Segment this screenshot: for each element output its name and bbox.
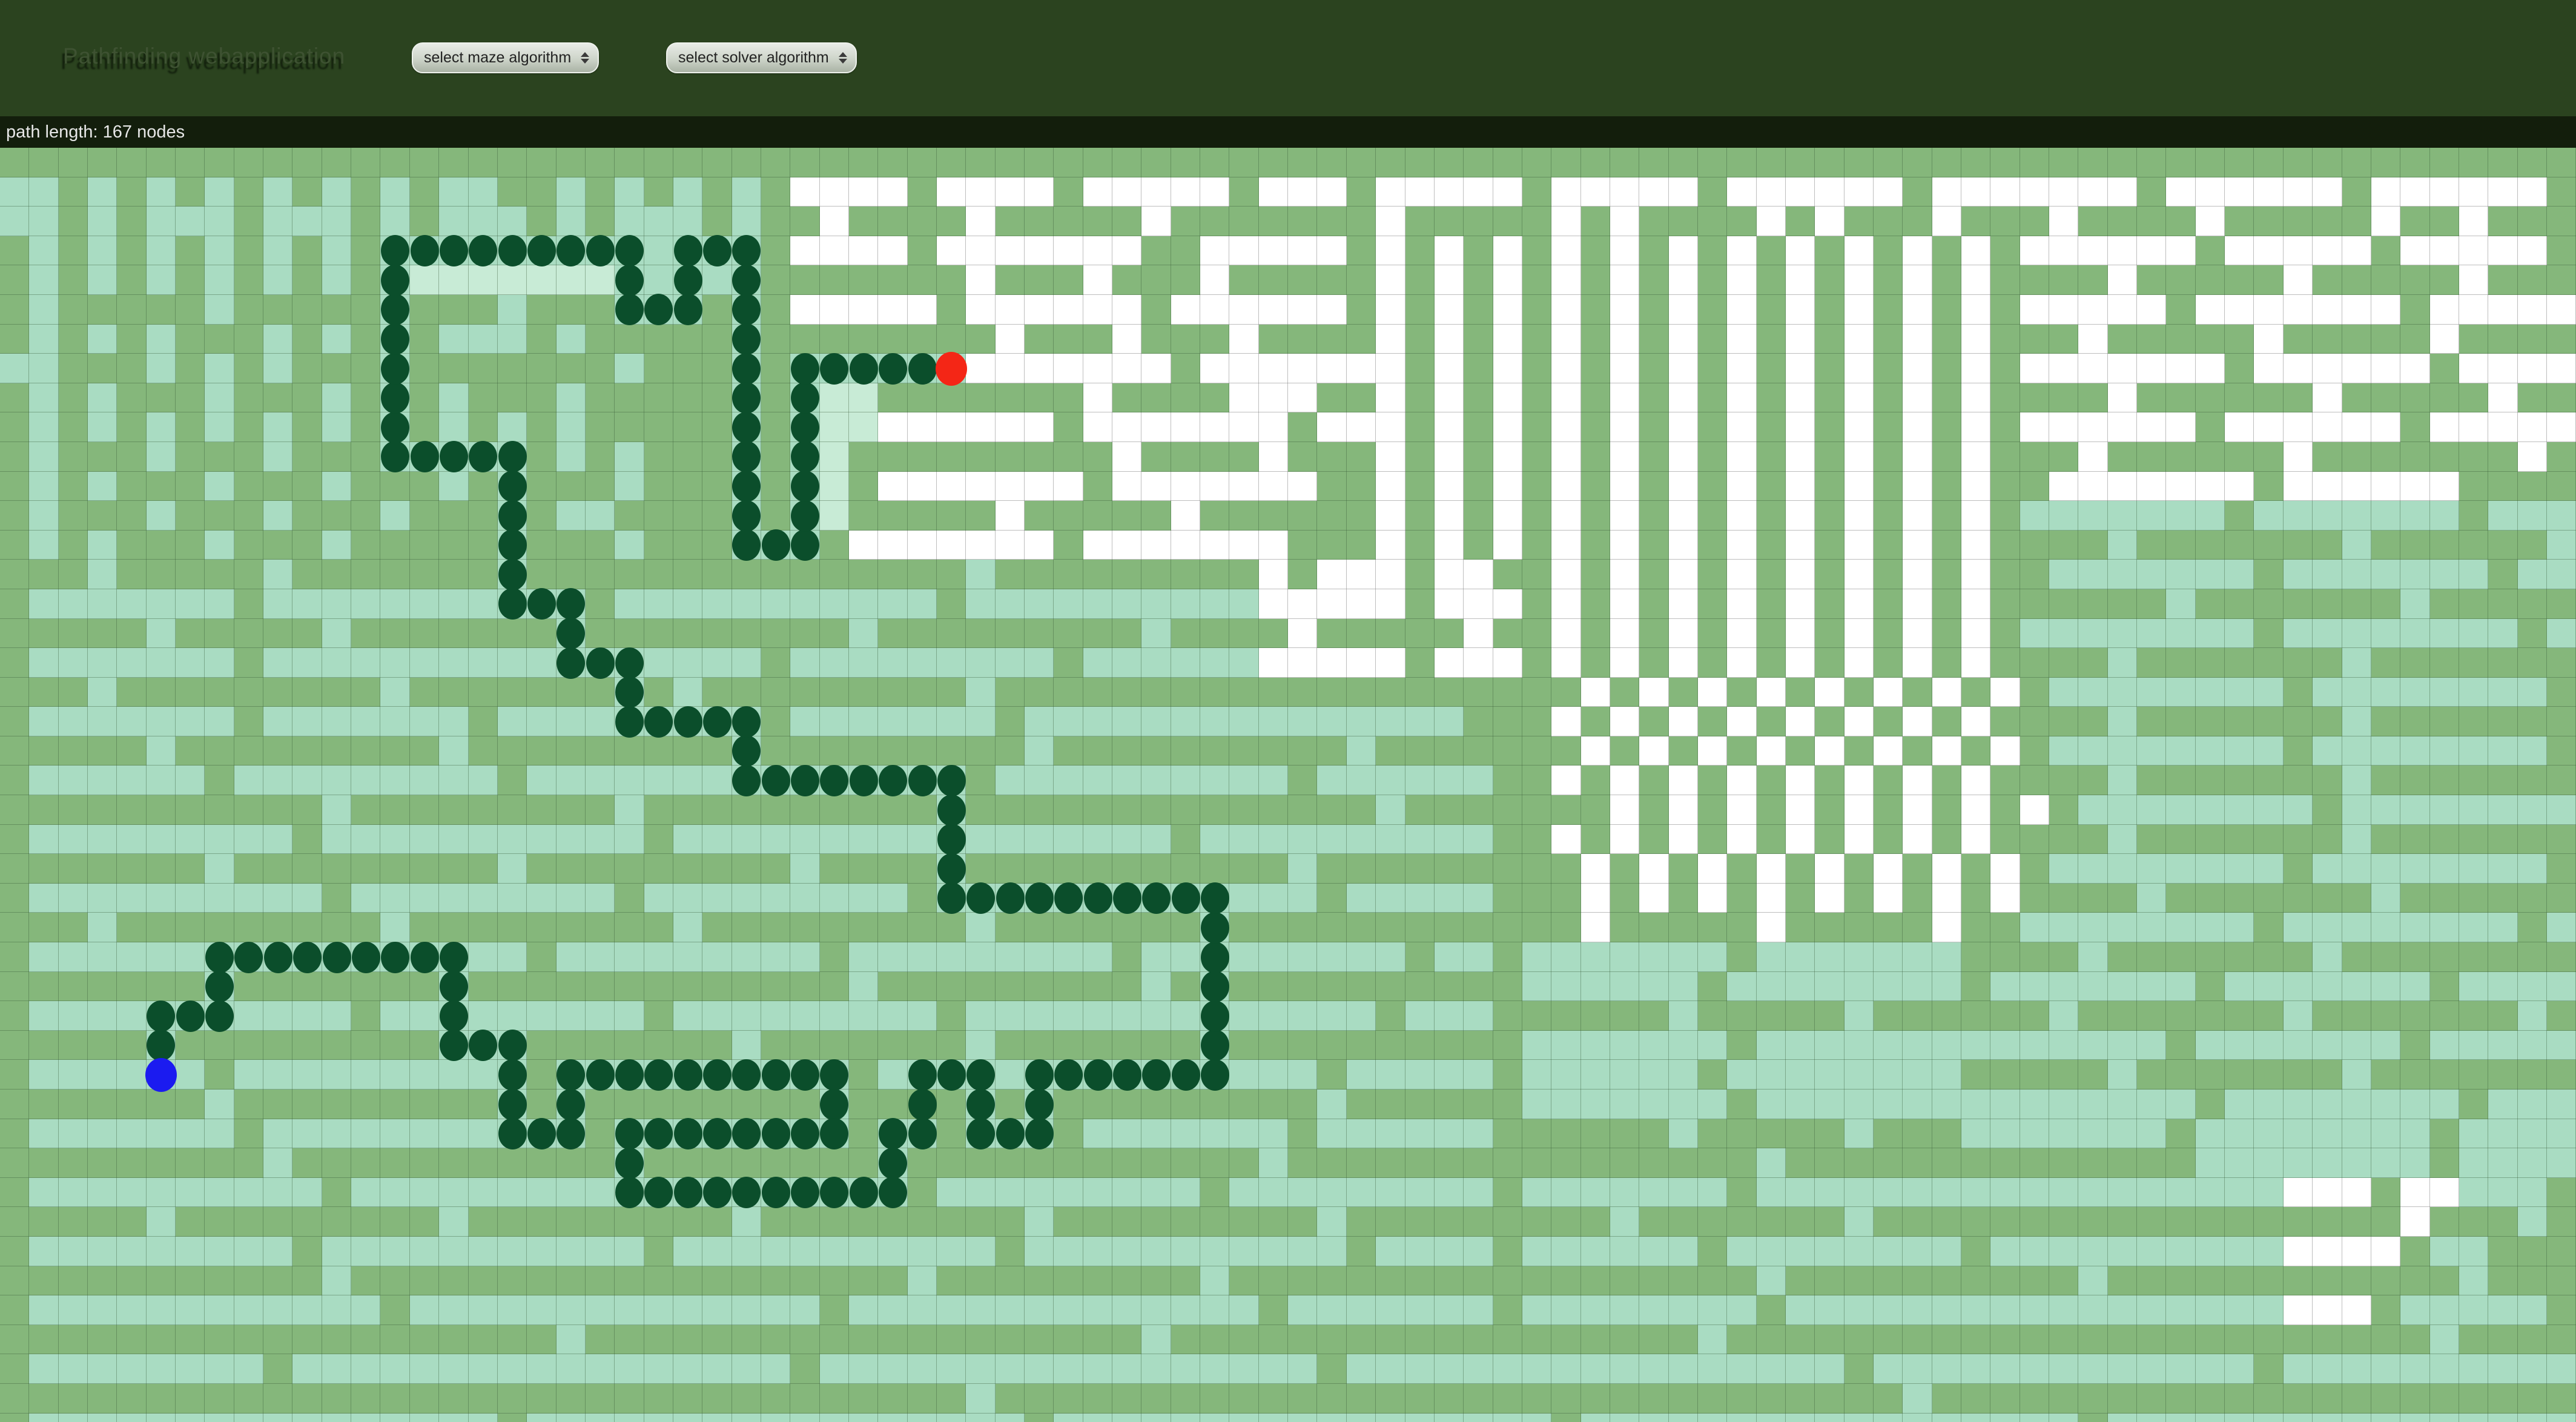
maze-cell[interactable] xyxy=(147,472,176,501)
maze-cell[interactable] xyxy=(1844,1060,1874,1090)
maze-cell[interactable] xyxy=(2020,648,2049,678)
maze-cell[interactable] xyxy=(1200,1325,1229,1355)
maze-cell[interactable] xyxy=(351,678,380,707)
maze-cell[interactable] xyxy=(1259,884,1288,913)
maze-cell[interactable] xyxy=(761,1207,790,1237)
maze-cell[interactable] xyxy=(2400,1001,2429,1031)
maze-cell[interactable] xyxy=(615,619,644,649)
maze-cell[interactable] xyxy=(1815,707,1844,736)
maze-cell[interactable] xyxy=(1259,707,1288,736)
maze-cell[interactable] xyxy=(702,1090,732,1119)
maze-cell[interactable] xyxy=(2020,1119,2049,1149)
maze-cell[interactable] xyxy=(702,354,732,383)
maze-cell[interactable] xyxy=(2020,766,2049,795)
maze-cell[interactable] xyxy=(2049,942,2078,972)
maze-cell[interactable] xyxy=(2518,1325,2547,1355)
maze-cell[interactable] xyxy=(527,207,556,236)
maze-cell[interactable] xyxy=(147,295,176,325)
maze-cell[interactable] xyxy=(205,265,234,295)
maze-cell[interactable] xyxy=(29,589,58,619)
maze-cell[interactable] xyxy=(263,736,292,766)
maze-cell[interactable] xyxy=(2137,766,2166,795)
maze-cell[interactable] xyxy=(673,177,702,207)
maze-cell[interactable] xyxy=(1083,501,1112,531)
maze-cell[interactable] xyxy=(234,354,263,383)
maze-cell[interactable] xyxy=(1698,678,1727,707)
maze-cell[interactable] xyxy=(966,736,995,766)
maze-cell[interactable] xyxy=(586,825,615,855)
maze-cell[interactable] xyxy=(2518,1414,2547,1422)
maze-cell[interactable] xyxy=(2488,1119,2517,1149)
maze-cell[interactable] xyxy=(29,1354,58,1384)
maze-cell[interactable] xyxy=(1025,295,1054,325)
maze-cell[interactable] xyxy=(966,325,995,354)
maze-cell[interactable] xyxy=(2430,383,2459,413)
maze-cell[interactable] xyxy=(849,295,878,325)
maze-cell[interactable] xyxy=(586,1295,615,1325)
maze-cell[interactable] xyxy=(2108,942,2137,972)
maze-cell[interactable] xyxy=(673,589,702,619)
maze-cell[interactable] xyxy=(1054,1384,1083,1414)
maze-cell[interactable] xyxy=(790,295,819,325)
maze-cell[interactable] xyxy=(1961,707,1990,736)
maze-cell[interactable] xyxy=(29,1237,58,1266)
maze-cell[interactable] xyxy=(673,825,702,855)
maze-cell[interactable] xyxy=(1522,1119,1551,1149)
maze-cell[interactable] xyxy=(908,1384,937,1414)
maze-cell[interactable] xyxy=(996,1384,1025,1414)
maze-cell[interactable] xyxy=(263,825,292,855)
maze-cell[interactable] xyxy=(1581,854,1610,884)
maze-cell[interactable] xyxy=(761,736,790,766)
maze-cell[interactable] xyxy=(2371,1148,2400,1178)
maze-cell[interactable] xyxy=(820,1031,849,1060)
maze-cell[interactable] xyxy=(2313,648,2342,678)
maze-cell[interactable] xyxy=(1932,1090,1961,1119)
maze-cell[interactable] xyxy=(2342,972,2371,1002)
maze-cell[interactable] xyxy=(2400,707,2429,736)
maze-cell[interactable] xyxy=(2313,1354,2342,1384)
maze-cell[interactable] xyxy=(351,501,380,531)
maze-cell[interactable] xyxy=(1727,412,1756,442)
maze-cell[interactable] xyxy=(2137,795,2166,825)
maze-cell[interactable] xyxy=(996,1414,1025,1422)
maze-cell[interactable] xyxy=(527,766,556,795)
maze-cell[interactable] xyxy=(322,1384,351,1414)
maze-cell[interactable] xyxy=(1932,501,1961,531)
maze-cell[interactable] xyxy=(702,442,732,472)
maze-cell[interactable] xyxy=(849,795,878,825)
maze-cell[interactable] xyxy=(1961,942,1990,972)
maze-cell[interactable] xyxy=(2137,177,2166,207)
maze-cell[interactable] xyxy=(2137,442,2166,472)
maze-cell[interactable] xyxy=(2049,1237,2078,1266)
maze-cell[interactable] xyxy=(469,412,498,442)
maze-cell[interactable] xyxy=(2284,148,2313,177)
maze-cell[interactable] xyxy=(673,1090,702,1119)
maze-cell[interactable] xyxy=(790,207,819,236)
maze-cell[interactable] xyxy=(439,1384,468,1414)
maze-cell[interactable] xyxy=(556,383,586,413)
maze-cell[interactable] xyxy=(1786,265,1815,295)
maze-cell[interactable] xyxy=(2284,884,2313,913)
maze-cell[interactable] xyxy=(820,148,849,177)
maze-cell[interactable] xyxy=(1025,648,1054,678)
maze-cell[interactable] xyxy=(1025,913,1054,942)
maze-cell[interactable] xyxy=(1903,736,1932,766)
maze-cell[interactable] xyxy=(1317,148,1346,177)
maze-cell[interactable] xyxy=(205,678,234,707)
maze-cell[interactable] xyxy=(1493,148,1522,177)
maze-cell[interactable] xyxy=(878,501,907,531)
maze-cell[interactable] xyxy=(205,1295,234,1325)
maze-cell[interactable] xyxy=(1669,1001,1698,1031)
maze-cell[interactable] xyxy=(2371,1119,2400,1149)
maze-cell[interactable] xyxy=(1551,1237,1580,1266)
maze-cell[interactable] xyxy=(498,354,527,383)
maze-cell[interactable] xyxy=(1874,678,1903,707)
maze-cell[interactable] xyxy=(2078,1090,2107,1119)
maze-cell[interactable] xyxy=(702,472,732,501)
maze-cell[interactable] xyxy=(410,501,439,531)
maze-cell[interactable] xyxy=(1903,619,1932,649)
maze-cell[interactable] xyxy=(1874,648,1903,678)
maze-cell[interactable] xyxy=(2313,795,2342,825)
maze-cell[interactable] xyxy=(996,265,1025,295)
maze-cell[interactable] xyxy=(556,707,586,736)
maze-cell[interactable] xyxy=(2254,325,2283,354)
maze-cell[interactable] xyxy=(1141,1295,1171,1325)
maze-cell[interactable] xyxy=(878,531,907,560)
maze-cell[interactable] xyxy=(1083,1090,1112,1119)
maze-cell[interactable] xyxy=(1493,1001,1522,1031)
maze-cell[interactable] xyxy=(498,1295,527,1325)
maze-cell[interactable] xyxy=(1435,1031,1464,1060)
maze-cell[interactable] xyxy=(0,942,29,972)
maze-cell[interactable] xyxy=(1054,972,1083,1002)
maze-cell[interactable] xyxy=(1932,854,1961,884)
maze-cell[interactable] xyxy=(2400,1384,2429,1414)
maze-cell[interactable] xyxy=(1112,619,1141,649)
maze-cell[interactable] xyxy=(1551,1295,1580,1325)
maze-cell[interactable] xyxy=(469,619,498,649)
maze-cell[interactable] xyxy=(2342,383,2371,413)
maze-cell[interactable] xyxy=(2342,1266,2371,1296)
maze-cell[interactable] xyxy=(2371,531,2400,560)
maze-cell[interactable] xyxy=(322,825,351,855)
maze-cell[interactable] xyxy=(673,148,702,177)
maze-cell[interactable] xyxy=(2400,412,2429,442)
maze-cell[interactable] xyxy=(2020,560,2049,589)
maze-cell[interactable] xyxy=(2313,1207,2342,1237)
maze-cell[interactable] xyxy=(1874,913,1903,942)
maze-cell[interactable] xyxy=(1757,1031,1786,1060)
maze-cell[interactable] xyxy=(615,884,644,913)
maze-cell[interactable] xyxy=(1698,354,1727,383)
maze-cell[interactable] xyxy=(1639,1031,1668,1060)
maze-cell[interactable] xyxy=(1786,295,1815,325)
maze-cell[interactable] xyxy=(117,648,146,678)
maze-cell[interactable] xyxy=(2342,619,2371,649)
maze-cell[interactable] xyxy=(380,1384,409,1414)
maze-cell[interactable] xyxy=(292,354,322,383)
maze-cell[interactable] xyxy=(1493,1178,1522,1208)
maze-cell[interactable] xyxy=(1698,1207,1727,1237)
maze-cell[interactable] xyxy=(2196,295,2225,325)
maze-cell[interactable] xyxy=(2518,1119,2547,1149)
maze-cell[interactable] xyxy=(1903,707,1932,736)
maze-cell[interactable] xyxy=(1786,560,1815,589)
maze-cell[interactable] xyxy=(2166,1325,2195,1355)
maze-cell[interactable] xyxy=(2488,1384,2517,1414)
maze-cell[interactable] xyxy=(1844,1001,1874,1031)
maze-cell[interactable] xyxy=(2108,707,2137,736)
maze-cell[interactable] xyxy=(439,472,468,501)
maze-cell[interactable] xyxy=(1405,531,1435,560)
maze-cell[interactable] xyxy=(2049,236,2078,266)
maze-cell[interactable] xyxy=(1581,1119,1610,1149)
maze-cell[interactable] xyxy=(2225,1060,2254,1090)
maze-cell[interactable] xyxy=(2049,295,2078,325)
maze-cell[interactable] xyxy=(1083,236,1112,266)
maze-cell[interactable] xyxy=(176,325,205,354)
maze-cell[interactable] xyxy=(117,1148,146,1178)
maze-cell[interactable] xyxy=(2254,1354,2283,1384)
maze-cell[interactable] xyxy=(1171,1207,1200,1237)
maze-cell[interactable] xyxy=(1259,1384,1288,1414)
maze-cell[interactable] xyxy=(410,913,439,942)
maze-cell[interactable] xyxy=(351,207,380,236)
maze-cell[interactable] xyxy=(263,1001,292,1031)
maze-cell[interactable] xyxy=(527,354,556,383)
maze-cell[interactable] xyxy=(59,1266,88,1296)
maze-cell[interactable] xyxy=(176,942,205,972)
maze-cell[interactable] xyxy=(1698,972,1727,1002)
maze-cell[interactable] xyxy=(117,913,146,942)
maze-cell[interactable] xyxy=(1112,913,1141,942)
maze-cell[interactable] xyxy=(1376,295,1405,325)
maze-cell[interactable] xyxy=(2108,354,2137,383)
maze-cell[interactable] xyxy=(1815,560,1844,589)
maze-cell[interactable] xyxy=(292,531,322,560)
maze-cell[interactable] xyxy=(1786,1325,1815,1355)
maze-cell[interactable] xyxy=(761,1090,790,1119)
maze-cell[interactable] xyxy=(2166,354,2195,383)
maze-cell[interactable] xyxy=(1522,1148,1551,1178)
maze-cell[interactable] xyxy=(1317,1266,1346,1296)
maze-cell[interactable] xyxy=(2371,1237,2400,1266)
maze-cell[interactable] xyxy=(1698,412,1727,442)
maze-cell[interactable] xyxy=(1405,736,1435,766)
maze-cell[interactable] xyxy=(527,972,556,1002)
maze-cell[interactable] xyxy=(205,1090,234,1119)
maze-cell[interactable] xyxy=(966,354,995,383)
maze-cell[interactable] xyxy=(1669,707,1698,736)
maze-cell[interactable] xyxy=(1229,942,1258,972)
maze-cell[interactable] xyxy=(1932,884,1961,913)
maze-cell[interactable] xyxy=(205,295,234,325)
maze-cell[interactable] xyxy=(1727,1207,1756,1237)
maze-cell[interactable] xyxy=(2225,236,2254,266)
maze-cell[interactable] xyxy=(1435,736,1464,766)
maze-cell[interactable] xyxy=(2459,942,2488,972)
maze-cell[interactable] xyxy=(1171,766,1200,795)
maze-cell[interactable] xyxy=(1083,707,1112,736)
maze-cell[interactable] xyxy=(1669,1295,1698,1325)
maze-cell[interactable] xyxy=(498,766,527,795)
maze-cell[interactable] xyxy=(1141,1119,1171,1149)
maze-cell[interactable] xyxy=(1141,148,1171,177)
maze-cell[interactable] xyxy=(205,1384,234,1414)
maze-cell[interactable] xyxy=(937,1237,966,1266)
maze-cell[interactable] xyxy=(1669,1354,1698,1384)
maze-cell[interactable] xyxy=(0,1414,29,1422)
maze-cell[interactable] xyxy=(878,854,907,884)
maze-cell[interactable] xyxy=(1288,295,1317,325)
maze-cell[interactable] xyxy=(1200,295,1229,325)
maze-cell[interactable] xyxy=(292,1207,322,1237)
maze-cell[interactable] xyxy=(2137,1060,2166,1090)
maze-cell[interactable] xyxy=(849,913,878,942)
maze-cell[interactable] xyxy=(2078,265,2107,295)
maze-cell[interactable] xyxy=(1815,1119,1844,1149)
maze-cell[interactable] xyxy=(2488,383,2517,413)
maze-cell[interactable] xyxy=(1786,148,1815,177)
maze-cell[interactable] xyxy=(1317,1237,1346,1266)
maze-cell[interactable] xyxy=(2284,1414,2313,1422)
maze-cell[interactable] xyxy=(1288,589,1317,619)
maze-cell[interactable] xyxy=(1639,354,1668,383)
maze-cell[interactable] xyxy=(2430,207,2459,236)
maze-cell[interactable] xyxy=(878,942,907,972)
maze-cell[interactable] xyxy=(1054,619,1083,649)
maze-cell[interactable] xyxy=(1990,472,2020,501)
maze-cell[interactable] xyxy=(1757,1384,1786,1414)
maze-cell[interactable] xyxy=(2400,442,2429,472)
maze-cell[interactable] xyxy=(263,472,292,501)
maze-cell[interactable] xyxy=(147,736,176,766)
maze-cell[interactable] xyxy=(2488,265,2517,295)
maze-cell[interactable] xyxy=(1435,354,1464,383)
maze-cell[interactable] xyxy=(1376,1148,1405,1178)
maze-cell[interactable] xyxy=(2400,1266,2429,1296)
maze-cell[interactable] xyxy=(1932,531,1961,560)
maze-cell[interactable] xyxy=(1493,942,1522,972)
maze-cell[interactable] xyxy=(1464,148,1493,177)
maze-cell[interactable] xyxy=(1522,177,1551,207)
maze-cell[interactable] xyxy=(2488,531,2517,560)
maze-cell[interactable] xyxy=(790,884,819,913)
maze-cell[interactable] xyxy=(176,1090,205,1119)
maze-cell[interactable] xyxy=(2284,295,2313,325)
maze-cell[interactable] xyxy=(1229,766,1258,795)
maze-cell[interactable] xyxy=(2166,560,2195,589)
maze-cell[interactable] xyxy=(586,589,615,619)
maze-cell[interactable] xyxy=(2313,354,2342,383)
maze-cell[interactable] xyxy=(439,354,468,383)
maze-cell[interactable] xyxy=(702,972,732,1002)
maze-cell[interactable] xyxy=(2313,177,2342,207)
maze-cell[interactable] xyxy=(1932,1060,1961,1090)
maze-cell[interactable] xyxy=(2518,1090,2547,1119)
maze-cell[interactable] xyxy=(1815,1031,1844,1060)
maze-cell[interactable] xyxy=(2459,1325,2488,1355)
maze-cell[interactable] xyxy=(176,1295,205,1325)
maze-cell[interactable] xyxy=(1815,1384,1844,1414)
maze-cell[interactable] xyxy=(2137,1354,2166,1384)
maze-cell[interactable] xyxy=(2371,412,2400,442)
maze-cell[interactable] xyxy=(469,1207,498,1237)
maze-cell[interactable] xyxy=(937,972,966,1002)
maze-cell[interactable] xyxy=(937,531,966,560)
maze-cell[interactable] xyxy=(1786,1207,1815,1237)
maze-cell[interactable] xyxy=(820,177,849,207)
maze-cell[interactable] xyxy=(556,884,586,913)
maze-cell[interactable] xyxy=(29,560,58,589)
maze-cell[interactable] xyxy=(2137,1384,2166,1414)
maze-cell[interactable] xyxy=(2459,265,2488,295)
maze-cell[interactable] xyxy=(1844,707,1874,736)
maze-cell[interactable] xyxy=(586,1148,615,1178)
maze-cell[interactable] xyxy=(1141,619,1171,649)
maze-cell[interactable] xyxy=(1610,236,1639,266)
maze-cell[interactable] xyxy=(2225,383,2254,413)
maze-cell[interactable] xyxy=(2430,1384,2459,1414)
maze-cell[interactable] xyxy=(1083,1354,1112,1384)
maze-cell[interactable] xyxy=(820,472,849,501)
maze-cell[interactable] xyxy=(2254,265,2283,295)
maze-cell[interactable] xyxy=(263,1148,292,1178)
maze-cell[interactable] xyxy=(1200,265,1229,295)
maze-cell[interactable] xyxy=(586,207,615,236)
maze-cell[interactable] xyxy=(1025,854,1054,884)
maze-cell[interactable] xyxy=(1990,531,2020,560)
maze-cell[interactable] xyxy=(1932,913,1961,942)
maze-cell[interactable] xyxy=(1903,913,1932,942)
maze-cell[interactable] xyxy=(2313,825,2342,855)
maze-cell[interactable] xyxy=(351,648,380,678)
maze-cell[interactable] xyxy=(673,1001,702,1031)
maze-cell[interactable] xyxy=(702,648,732,678)
maze-cell[interactable] xyxy=(2108,442,2137,472)
maze-cell[interactable] xyxy=(0,325,29,354)
maze-cell[interactable] xyxy=(1493,207,1522,236)
maze-cell[interactable] xyxy=(1083,207,1112,236)
maze-cell[interactable] xyxy=(1141,1207,1171,1237)
maze-cell[interactable] xyxy=(147,442,176,472)
maze-cell[interactable] xyxy=(1493,678,1522,707)
maze-cell[interactable] xyxy=(351,589,380,619)
maze-cell[interactable] xyxy=(439,1237,468,1266)
maze-cell[interactable] xyxy=(2137,1414,2166,1422)
maze-cell[interactable] xyxy=(2313,942,2342,972)
maze-cell[interactable] xyxy=(1698,884,1727,913)
maze-cell[interactable] xyxy=(732,619,761,649)
maze-cell[interactable] xyxy=(1844,1031,1874,1060)
maze-cell[interactable] xyxy=(59,1090,88,1119)
maze-cell[interactable] xyxy=(2284,207,2313,236)
maze-cell[interactable] xyxy=(1200,1090,1229,1119)
maze-cell[interactable] xyxy=(1551,648,1580,678)
maze-cell[interactable] xyxy=(2488,795,2517,825)
maze-cell[interactable] xyxy=(1639,236,1668,266)
maze-cell[interactable] xyxy=(1961,766,1990,795)
maze-cell[interactable] xyxy=(59,619,88,649)
maze-cell[interactable] xyxy=(820,619,849,649)
maze-cell[interactable] xyxy=(2196,648,2225,678)
maze-cell[interactable] xyxy=(2078,148,2107,177)
maze-cell[interactable] xyxy=(966,1148,995,1178)
